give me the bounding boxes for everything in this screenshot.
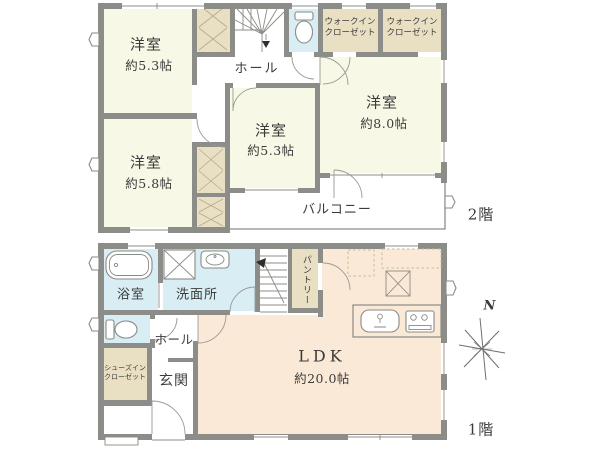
bedroom-sw-size: 約5.8帖 — [125, 176, 172, 192]
bedroom-east-size: 約8.0帖 — [360, 116, 407, 132]
entrance-label: 玄関 — [159, 372, 189, 390]
closet-sw-upper-area — [197, 147, 225, 193]
shoes-closet-label: シューズイン クローゼット — [104, 364, 146, 382]
hall-1f-label: ホール — [154, 332, 193, 348]
bedroom-center-size: 約5.3帖 — [247, 143, 294, 159]
washer-pan-icon — [164, 250, 195, 279]
bathtub-icon — [106, 251, 152, 279]
ldk-size: 約20.0帖 — [294, 371, 350, 387]
floor1-plan — [89, 243, 456, 445]
bedroom-sw-label: 洋室 — [130, 153, 162, 173]
toilet-icon-1f — [106, 320, 137, 339]
closet-sw-lower-area — [197, 197, 225, 227]
bedroom-east-label: 洋室 — [366, 93, 398, 113]
floorplan-canvas: 洋室 約5.3帖 ホール ウォークイン クローゼット ウォークイン クローゼット… — [0, 0, 600, 450]
ldk-label: LDK — [298, 347, 345, 368]
washbasin-icon — [201, 251, 229, 268]
floor2-label: 2階 — [468, 205, 495, 225]
washroom-label: 洗面所 — [176, 288, 218, 305]
bedroom-center-label: 洋室 — [255, 121, 287, 141]
balcony-label: バルコニー — [302, 203, 372, 220]
wic-right-label: ウォークイン クローゼット — [386, 17, 437, 39]
floor1-label: 1階 — [468, 420, 495, 440]
kitchen-sink-icon — [361, 310, 399, 332]
stove-icon — [406, 311, 434, 332]
hall-2f-label: ホール — [234, 62, 279, 79]
compass-star-icon — [459, 318, 505, 380]
toilet-icon-2f — [295, 12, 313, 43]
pantry-label: パントリー — [299, 255, 311, 305]
bedroom-sw-area — [104, 119, 192, 227]
bedroom-nw-size: 約5.3帖 — [125, 58, 172, 74]
compass-north-label: N — [484, 299, 497, 316]
bedroom-nw-label: 洋室 — [130, 35, 162, 55]
closet-nw-area — [197, 3, 230, 52]
bathroom-label: 浴室 — [117, 288, 145, 305]
wic-left-label: ウォークイン クローゼット — [324, 17, 375, 39]
